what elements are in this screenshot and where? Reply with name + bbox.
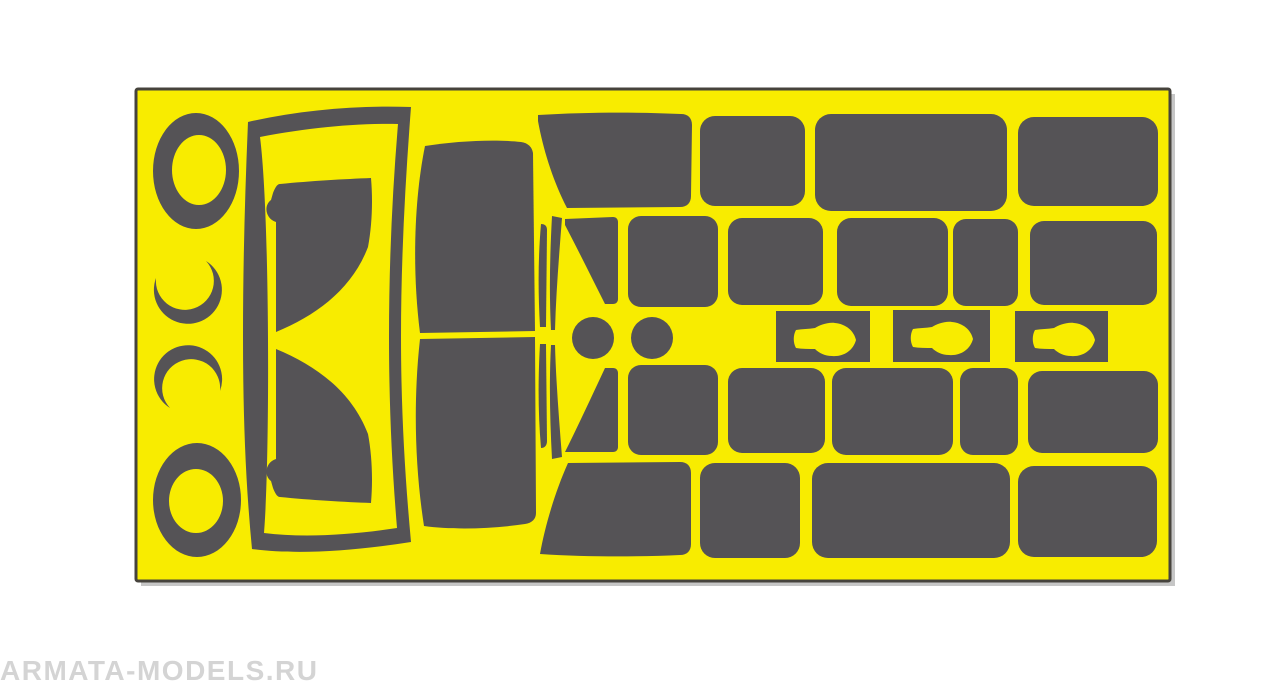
mask-window-r5c2 [812, 463, 1010, 558]
mask-window-r5c3 [1018, 466, 1157, 557]
watermark-text: ARMATA-MODELS.RU [0, 657, 318, 685]
mask-window-r1c3 [1018, 117, 1158, 206]
mask-window-r4c4 [960, 368, 1018, 455]
mask-window-r2c2 [728, 218, 823, 305]
mask-pillar-strip-upper-inner [539, 224, 547, 327]
mask-sheet-graphic [0, 0, 1280, 687]
mask-quarter-window-top [538, 113, 692, 208]
mask-quarter-window-bottom [540, 462, 691, 556]
mask-window-r4c2 [728, 368, 825, 453]
mask-roof-upper [415, 141, 535, 333]
mask-window-r1c1 [700, 116, 805, 206]
mask-headlight-right [631, 317, 673, 359]
mask-window-r2c1 [628, 216, 718, 307]
mask-window-r1c2 [815, 114, 1007, 211]
mask-window-r5c1 [700, 463, 800, 558]
mask-window-r4c3 [832, 368, 953, 455]
mask-headlight-left [572, 317, 614, 359]
mask-pillar-strip-lower-inner [539, 344, 547, 448]
mask-window-r2c4 [953, 219, 1018, 306]
mask-roof-lower [416, 337, 536, 528]
mask-window-r4c5 [1028, 371, 1158, 453]
mask-window-r2c3 [837, 218, 948, 306]
mask-window-r2c5 [1030, 221, 1157, 305]
product-image: ARMATA-MODELS.RU [0, 0, 1280, 687]
mask-window-r4c1 [628, 365, 718, 455]
